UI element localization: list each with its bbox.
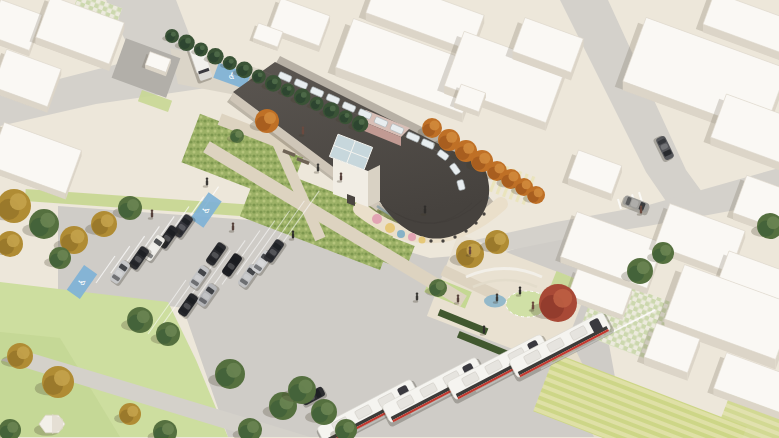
conifer-tree	[265, 75, 282, 92]
tree	[652, 242, 674, 264]
person	[317, 164, 320, 172]
person	[519, 287, 522, 295]
conifer-tree	[281, 83, 295, 97]
tree	[156, 322, 180, 346]
terrace-furniture	[419, 237, 426, 244]
tree	[118, 196, 142, 220]
conifer-tree	[178, 34, 195, 51]
terrace-furniture	[408, 233, 416, 241]
person-shadow	[203, 185, 209, 187]
tree	[230, 129, 244, 143]
tree	[49, 247, 71, 269]
person	[206, 178, 209, 186]
person-shadow	[229, 230, 235, 232]
tree	[91, 211, 117, 237]
person	[457, 295, 460, 303]
conifer-tree	[223, 56, 237, 70]
terrace-furniture	[441, 239, 444, 242]
person	[640, 206, 643, 214]
person	[424, 206, 427, 214]
tree	[255, 109, 279, 133]
tree	[42, 366, 74, 398]
person-shadow	[454, 302, 460, 304]
tree	[215, 359, 245, 389]
conifer-tree	[352, 116, 369, 133]
conifer-tree	[339, 110, 353, 124]
terrace-furniture	[464, 229, 467, 232]
person-shadow	[148, 217, 154, 219]
terrace-furniture	[474, 221, 477, 224]
person-shadow	[299, 134, 305, 136]
person-shadow	[637, 213, 643, 215]
person-shadow	[480, 333, 486, 335]
conifer-tree	[310, 97, 324, 111]
person	[469, 247, 472, 255]
conifer-tree	[323, 102, 340, 119]
person-shadow	[421, 213, 427, 215]
site-rendering: ♿♿♿	[0, 0, 779, 438]
conifer-tree	[165, 29, 179, 43]
tree	[119, 403, 141, 425]
person	[302, 127, 305, 135]
main-building-part	[368, 165, 380, 207]
tree	[422, 118, 442, 138]
conifer-tree	[294, 89, 311, 106]
person-shadow	[493, 301, 499, 303]
person	[292, 231, 295, 239]
person	[532, 302, 535, 310]
tree	[29, 209, 59, 239]
terrace-furniture	[482, 212, 485, 215]
person-shadow	[337, 180, 343, 182]
person-shadow	[529, 309, 535, 311]
plaza-feature	[484, 295, 506, 308]
person	[232, 223, 235, 231]
terrace-furniture	[429, 239, 432, 242]
tree	[539, 284, 577, 322]
tree	[288, 376, 316, 404]
tree	[311, 399, 337, 425]
person	[416, 293, 419, 301]
conifer-tree	[194, 43, 208, 57]
person	[496, 294, 499, 302]
person-shadow	[289, 238, 295, 240]
tree	[429, 279, 447, 297]
terrace-furniture	[372, 214, 382, 224]
person	[340, 173, 343, 181]
conifer-tree	[207, 48, 224, 65]
tree	[127, 307, 153, 333]
tree	[7, 343, 33, 369]
aerial-render-canvas: ♿♿♿	[0, 0, 779, 438]
person	[151, 210, 154, 218]
person-shadow	[314, 171, 320, 173]
terrace-furniture	[385, 223, 395, 233]
tree	[527, 186, 545, 204]
person-shadow	[516, 294, 522, 296]
person-shadow	[413, 300, 419, 302]
conifer-tree	[236, 62, 253, 79]
conifer-tree	[252, 70, 266, 84]
terrace-furniture	[397, 230, 405, 238]
terrace-furniture	[453, 235, 456, 238]
person	[483, 326, 486, 334]
tree	[627, 258, 653, 284]
tree	[485, 230, 509, 254]
person-shadow	[466, 254, 472, 256]
